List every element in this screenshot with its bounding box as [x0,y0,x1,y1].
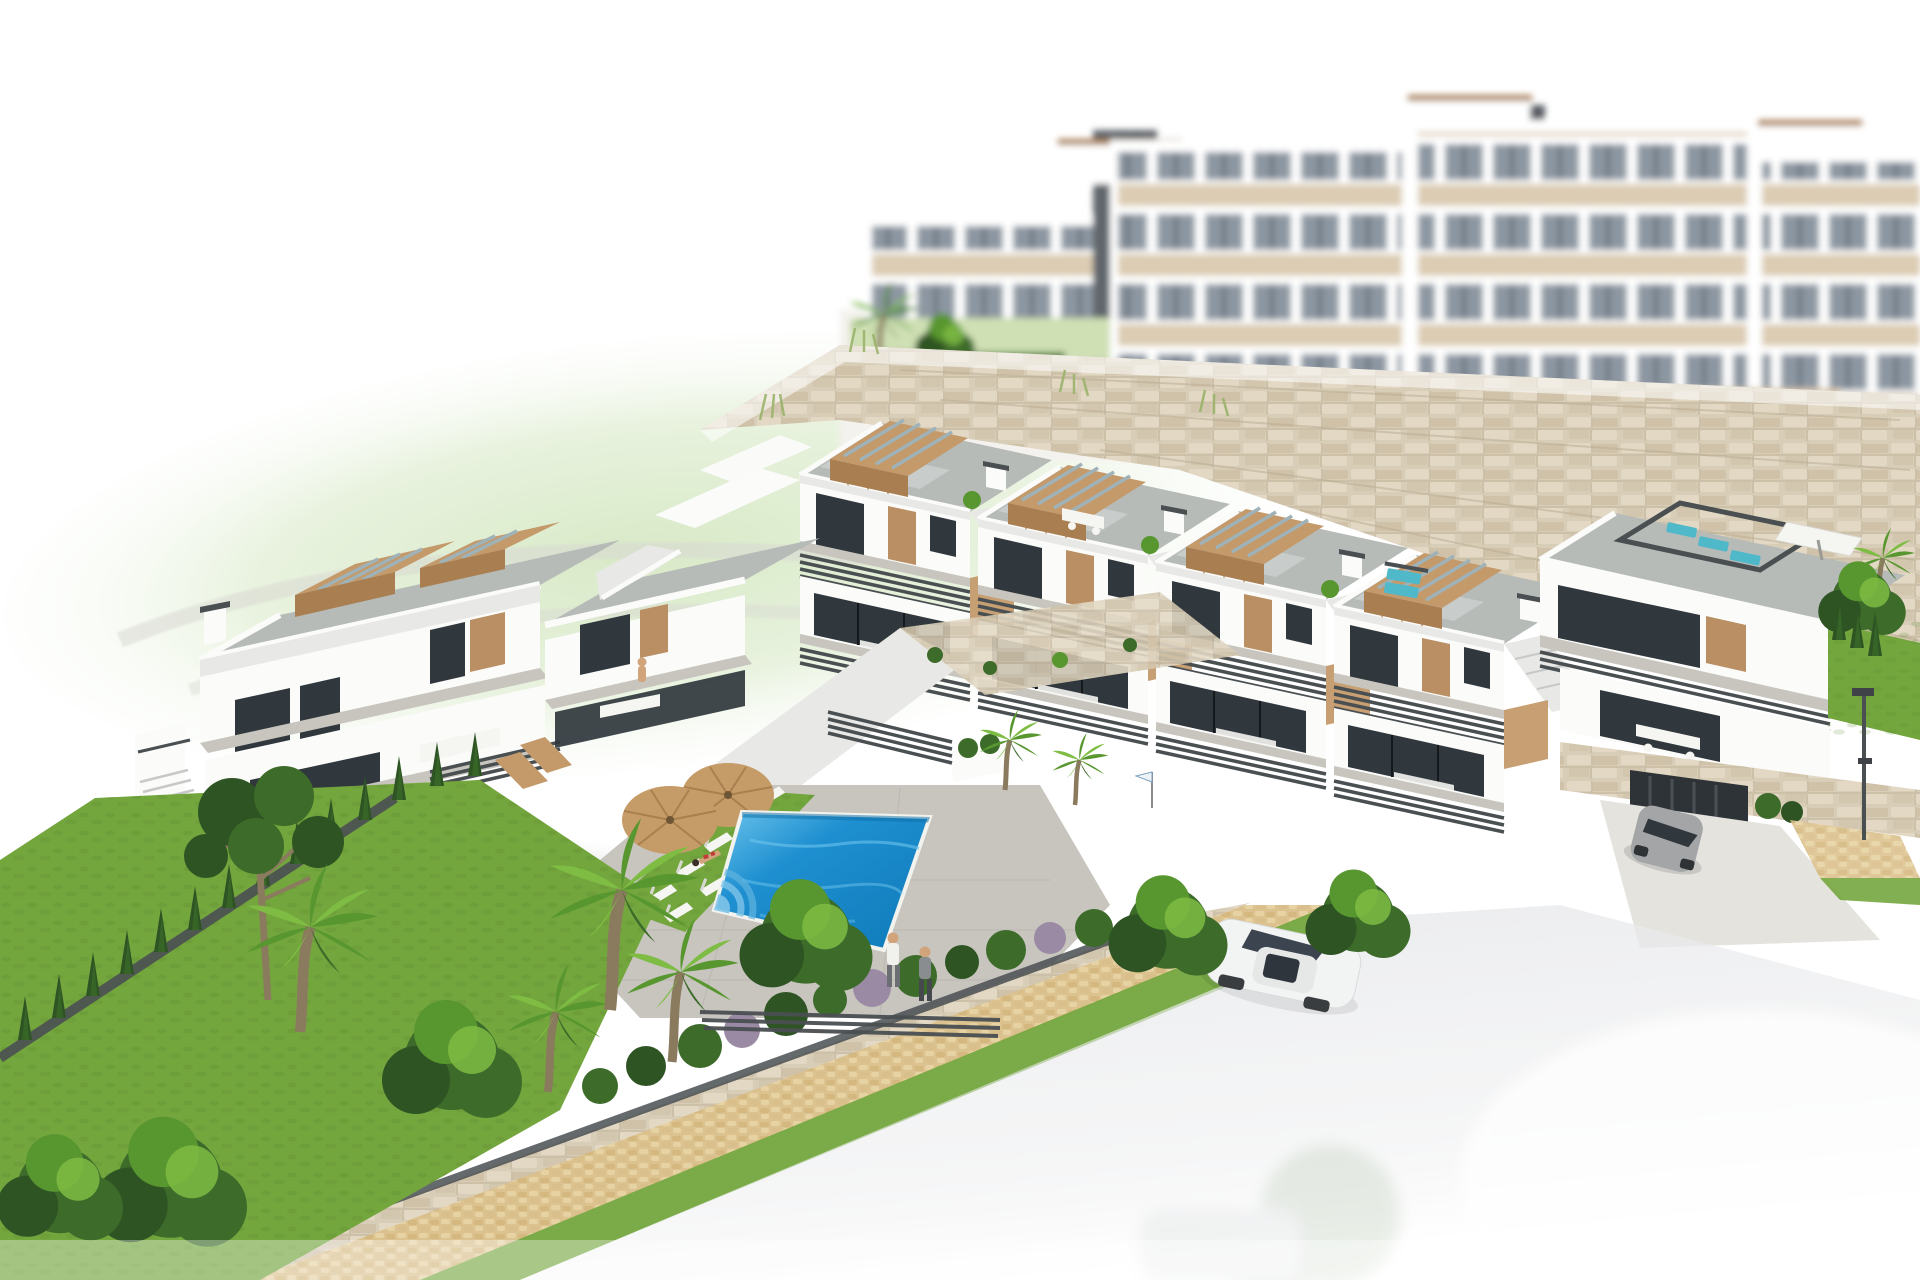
architectural-render [0,0,1920,1280]
render-canvas [0,0,1920,1280]
terrace-person [638,658,647,683]
straw-parasol [622,786,718,854]
roof-plant [1321,580,1339,598]
roof-plant [963,491,981,509]
roof-plant [1141,536,1159,554]
